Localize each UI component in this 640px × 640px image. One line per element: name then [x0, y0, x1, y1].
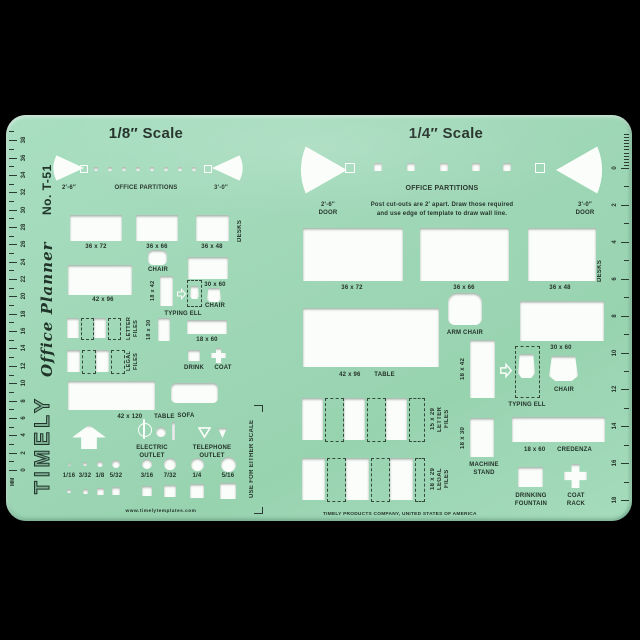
photo-canvas: { "colors":{"background":"#000000","temp…: [0, 0, 640, 640]
partition-post-cutout: [94, 167, 98, 171]
ruler-tick: [624, 260, 629, 261]
hole-cutout: [68, 463, 71, 466]
ruler-tick: [9, 357, 14, 358]
coat-label: COAT: [209, 365, 237, 372]
ruler-fine-tick: [624, 156, 629, 157]
legal-files-word: FILES: [444, 458, 450, 500]
bracket-mark: [254, 507, 263, 514]
partition-note-line: and use edge of template to draw wall li…: [342, 211, 542, 218]
ruler-tick: [9, 166, 14, 167]
chair-label: CHAIR: [549, 387, 579, 394]
desk-size-label: 36 x 72: [76, 244, 116, 251]
arm-chair-cutout: [448, 293, 482, 325]
fraction-label: 5/16: [213, 473, 243, 480]
partition-post-cutout: [192, 167, 196, 171]
letter-files-word: 15 x 29: [430, 398, 436, 440]
ruler-tick: [621, 316, 629, 317]
ruler-tick: [9, 175, 17, 176]
ruler-fine-tick: [624, 165, 629, 166]
drinking-fountain-label: DRINKING: [504, 493, 558, 500]
ruler-tick: [9, 409, 14, 410]
door-size-label: 2′-6″: [54, 185, 84, 192]
ruler-tick: [621, 168, 629, 169]
ruler-fine-tick: [624, 137, 629, 138]
ruler-number: 32: [19, 186, 29, 198]
letter-file-cutout: [344, 398, 365, 440]
desk-30x60-cutout: [188, 257, 228, 279]
ruler-tick: [9, 435, 17, 436]
partition-post-cutout: [503, 163, 511, 171]
ruler-tick: [9, 392, 14, 393]
arrow-cutout: [499, 362, 513, 379]
partition-post-cutout: [108, 167, 112, 171]
door-size-label: 3′-0″: [206, 185, 236, 192]
fraction-label: 1/4: [182, 473, 212, 480]
legal-file-cutout: [390, 458, 413, 500]
door-post-outline-cutout: [535, 163, 545, 173]
typing-chair-cutout: [518, 354, 535, 378]
square-cutout: [142, 486, 152, 496]
door-post-outline-cutout: [80, 165, 88, 173]
ruler-number: 18: [610, 494, 620, 506]
legal-file-cutout: [346, 458, 369, 500]
square-cutout: [67, 489, 71, 493]
ruler-fine-tick: [624, 149, 629, 150]
ruler-tick: [624, 186, 629, 187]
ruler-number: 38: [19, 134, 29, 146]
ruler-tick: [624, 297, 629, 298]
ruler-tick: [9, 158, 17, 159]
ruler-tick: [9, 236, 14, 237]
desk-size-label: 36 x 72: [332, 285, 372, 292]
left-ruler-unit: MM: [8, 476, 18, 488]
partition-post-cutout: [122, 167, 126, 171]
ruler-tick: [621, 242, 629, 243]
coat-rack-label: RACK: [558, 501, 594, 508]
bracket-mark: [254, 405, 263, 412]
ruler-number: 4: [610, 236, 620, 248]
coat-cutout: [211, 348, 226, 363]
desks-side-label: DESKS: [594, 251, 606, 291]
office-partitions-label: OFFICE PARTITIONS: [397, 185, 487, 193]
office-partitions-label: OFFICE PARTITIONS: [101, 185, 191, 192]
ruler-number: 10: [610, 347, 620, 359]
ruler-tick: [9, 305, 14, 306]
partition-post-cutout: [472, 163, 480, 171]
size-18x60-label: 18 x 60: [187, 337, 227, 344]
chair-cutout: [207, 288, 221, 302]
desk-size-label: 36 x 48: [192, 244, 232, 251]
square-cutout: [190, 484, 204, 498]
ruler-fine-tick: [624, 162, 629, 163]
ruler-tick: [9, 322, 14, 323]
ruler-tick: [9, 210, 17, 211]
electric-outlet-dot: [156, 427, 166, 437]
letter-file-outline: [409, 398, 425, 442]
ruler-tick: [9, 348, 17, 349]
either-scale-text: USE FOR EITHER SCALE: [249, 413, 255, 505]
chair-label: CHAIR: [200, 303, 230, 310]
fraction-label: 7/32: [155, 473, 185, 480]
table-42x96-label: 42 x 96 TABLE: [322, 372, 412, 379]
ruler-tick: [9, 366, 17, 367]
size-18x30-label: 18 x 30: [144, 317, 153, 343]
door-swing-cutout: [299, 142, 347, 198]
machine-stand-cutout: [470, 418, 494, 457]
square-cutout: [83, 489, 88, 494]
legal-files-word: 18 x 29: [430, 458, 436, 500]
letter-files-word: FILES: [444, 398, 450, 440]
ruler-tick: [621, 205, 629, 206]
drink-label: DRINK: [178, 365, 210, 372]
left-ruler: 02468101214161820222426283032343638: [6, 115, 36, 521]
drinking-fountain-label: FOUNTAIN: [504, 501, 558, 508]
return-18x42-cutout: [160, 276, 173, 306]
partition-post-cutout: [440, 163, 448, 171]
ruler-tick: [9, 444, 14, 445]
telephone-outlet-triangle: [218, 428, 227, 438]
electric-outlet-symbol: [138, 423, 152, 437]
legal-files-word: LEGAL: [126, 348, 132, 374]
ruler-tick: [621, 463, 629, 464]
partition-post-cutout: [150, 167, 154, 171]
ruler-tick: [621, 353, 629, 354]
ruler-number: 24: [19, 256, 29, 268]
ruler-tick: [621, 389, 629, 390]
machine-stand-label: MACHINE: [458, 462, 510, 469]
ruler-number: 12: [19, 360, 29, 372]
letter-file-cutout: [386, 398, 407, 440]
ruler-tick: [621, 426, 629, 427]
ruler-number: 0: [19, 464, 29, 476]
ruler-tick: [9, 227, 17, 228]
letter-file-cutout: [94, 318, 106, 338]
ruler-fine-tick: [624, 134, 629, 135]
letter-file-outline: [108, 318, 121, 340]
ruler-tick: [624, 334, 629, 335]
credenza-cutout: [512, 417, 605, 442]
ruler-tick: [9, 201, 14, 202]
chair-label: CHAIR: [143, 267, 173, 274]
hole-cutout: [142, 459, 152, 469]
partition-post-cutout: [407, 163, 415, 171]
ruler-tick: [9, 279, 17, 280]
ruler-tick: [9, 270, 14, 271]
door-post-outline-cutout: [345, 163, 355, 173]
hole-cutout: [221, 457, 236, 472]
ruler-number: 8: [610, 310, 620, 322]
desk-30x60-cutout: [520, 301, 604, 341]
desk-36x72-cutout: [70, 215, 122, 241]
partition-note-line: Post cut-outs are 2′ apart. Draw those r…: [342, 202, 542, 209]
manufacturer-label: TIMELY PRODUCTS COMPANY, UNITED STATES O…: [323, 512, 459, 518]
ruler-number: 2: [19, 447, 29, 459]
ruler-tick: [9, 331, 17, 332]
table-size-label: 42 x 96: [83, 297, 123, 304]
return-18x42-cutout: [470, 340, 495, 398]
ruler-number: 18: [19, 308, 29, 320]
legal-file-outline: [371, 458, 390, 502]
electric-outlet-bar: [172, 422, 175, 440]
square-cutout: [112, 487, 121, 496]
right-ruler: 024681012141618: [606, 115, 632, 521]
sofa-cutout: [171, 383, 218, 403]
ruler-tick: [9, 314, 17, 315]
ruler-tick: [624, 482, 629, 483]
letter-files-label: LETTER FILES: [124, 315, 140, 341]
letter-files-word: LETTER: [437, 398, 443, 440]
legal-file-cutout: [302, 458, 325, 500]
ruler-tick: [9, 375, 14, 376]
size-18x30-text: 18 x 30: [146, 317, 152, 343]
ruler-tick: [9, 418, 17, 419]
ruler-tick: [9, 453, 17, 454]
desks-side-label: DESKS: [234, 213, 246, 249]
letter-files-word: LETTER: [126, 315, 132, 341]
door-swing-cutout: [212, 153, 244, 183]
hole-cutout: [97, 461, 103, 467]
ruler-number: 36: [19, 152, 29, 164]
door-swing-cutout: [556, 142, 604, 198]
ruler-number: 6: [610, 273, 620, 285]
ruler-tick: [9, 149, 14, 150]
ruler-tick: [9, 340, 14, 341]
legal-file-outline: [415, 458, 425, 502]
door-post-outline-cutout: [204, 165, 212, 173]
arrow-cutout: [176, 288, 187, 300]
ruler-tick: [624, 371, 629, 372]
desks-side-text: DESKS: [597, 251, 603, 291]
telephone-outlet-symbol: [198, 427, 211, 438]
ruler-tick: [9, 131, 14, 132]
size-30x60-label: 30 x 60: [540, 345, 582, 352]
ruler-tick: [9, 140, 17, 141]
legal-files-label: LEGAL FILES: [124, 348, 140, 374]
drinking-fountain-cutout: [518, 467, 543, 487]
ruler-number: 14: [19, 342, 29, 354]
door-size-label: 2′-6″: [310, 202, 346, 209]
ruler-tick: [9, 184, 14, 185]
legal-file-outline: [111, 350, 125, 374]
table-word-text: TABLE: [374, 372, 395, 378]
partition-post-cutout: [164, 167, 168, 171]
hole-cutout: [164, 458, 176, 470]
website-label: www.timelytemplates.com: [117, 509, 205, 515]
hole-cutout: [191, 458, 204, 471]
ruler-number: 2: [610, 199, 620, 211]
coat-rack-label: COAT: [558, 493, 594, 500]
ruler-number: 22: [19, 273, 29, 285]
desk-36x66-cutout: [420, 228, 509, 281]
ruler-number: 10: [19, 377, 29, 389]
ruler-number: 26: [19, 238, 29, 250]
legal-files-word: FILES: [133, 348, 139, 374]
credenza-label: 18 x 60 CREDENZA: [514, 447, 602, 454]
table-42x120-cutout: [68, 381, 155, 410]
ruler-fine-tick: [624, 140, 629, 141]
brand-script-text: Office Planner: [38, 233, 56, 385]
letter-file-cutout: [302, 398, 323, 440]
quarter-scale-title: 1/4″ Scale: [386, 125, 506, 142]
ruler-number: 28: [19, 221, 29, 233]
arm-chair-label: ARM CHAIR: [439, 330, 491, 337]
ruler-fine-tick: [624, 146, 629, 147]
size-18x42-label: 18 x 42: [458, 343, 468, 395]
chair-cutout: [148, 250, 167, 265]
stencil-template: No. T-51 Office Planner TIMELY 024681012…: [6, 115, 632, 521]
table-42x96-cutout: [68, 265, 132, 295]
stand-18x30-cutout: [158, 318, 170, 341]
ruler-fine-tick: [624, 153, 629, 154]
ruler-tick: [9, 192, 17, 193]
either-scale-label: USE FOR EITHER SCALE: [246, 413, 258, 505]
size-18x42-text: 18 x 42: [460, 343, 466, 395]
credenza-word-text: CREDENZA: [557, 447, 592, 453]
ruler-number: 30: [19, 204, 29, 216]
desk-size-label: 36 x 48: [540, 285, 580, 292]
square-cutout: [164, 485, 176, 497]
ruler-fine-tick: [624, 143, 629, 144]
letter-files-word: FILES: [133, 315, 139, 341]
desk-36x48-cutout: [528, 228, 596, 281]
ruler-number: 14: [610, 420, 620, 432]
ruler-tick: [624, 223, 629, 224]
ruler-number: 8: [19, 395, 29, 407]
credenza-18x60-cutout: [187, 320, 227, 334]
drink-cutout: [188, 350, 200, 361]
letter-file-outline: [81, 318, 94, 340]
partition-post-cutout: [374, 163, 382, 171]
ruler-number: 20: [19, 290, 29, 302]
electric-outlet-label: ELECTRIC: [132, 445, 172, 452]
typing-ell-label: TYPING ELL: [502, 402, 552, 409]
table-42x96-cutout: [303, 308, 439, 367]
ruler-tick: [621, 279, 629, 280]
door-word-label: DOOR: [567, 210, 603, 217]
square-cutout: [97, 488, 104, 495]
letter-file-outline: [367, 398, 386, 442]
ruler-number: 0: [610, 162, 620, 174]
electric-outlet-line: [143, 419, 145, 439]
partition-post-cutout: [178, 167, 182, 171]
size-18x30-text: 18 x 30: [460, 420, 466, 456]
desk-size-label: 36 x 66: [444, 285, 484, 292]
desk-36x66-cutout: [136, 215, 178, 241]
ruler-tick: [9, 253, 14, 254]
north-arrow-cutout: [72, 425, 106, 449]
fraction-label: 5/32: [101, 473, 131, 480]
ruler-tick: [9, 461, 14, 462]
table-size-text: 42 x 96: [339, 372, 360, 378]
square-cutout: [220, 483, 236, 499]
door-word-label: DOOR: [310, 210, 346, 217]
letter-file-outline: [325, 398, 344, 442]
ruler-tick: [624, 445, 629, 446]
size-18x42-text: 18 x 42: [150, 275, 156, 306]
ruler-number: 12: [610, 383, 620, 395]
ruler-number: 16: [19, 325, 29, 337]
brand-script: Office Planner: [36, 233, 58, 385]
chair-cutout: [549, 356, 578, 381]
legal-files-label: 18 x 29 LEGAL FILES: [426, 458, 454, 500]
letter-file-cutout: [67, 318, 79, 338]
legal-file-cutout: [96, 350, 109, 372]
ruler-fine-tick: [624, 159, 629, 160]
ruler-number: 4: [19, 429, 29, 441]
ruler-number: 6: [19, 412, 29, 424]
telephone-outlet-label: TELEPHONE: [190, 445, 234, 452]
credenza-size-text: 18 x 60: [524, 447, 545, 453]
legal-files-word: LEGAL: [437, 458, 443, 500]
hole-cutout: [83, 462, 88, 467]
ruler-tick: [9, 296, 17, 297]
ruler-tick: [624, 408, 629, 409]
ruler-tick: [9, 218, 14, 219]
ruler-tick: [9, 288, 14, 289]
desk-36x72-cutout: [303, 228, 403, 281]
eighth-scale-title: 1/8″ Scale: [91, 125, 201, 142]
legal-file-cutout: [67, 350, 80, 372]
machine-stand-label: STAND: [458, 470, 510, 477]
desks-side-text: DESKS: [237, 213, 243, 249]
ruler-tick: [9, 383, 17, 384]
ruler-number: 16: [610, 457, 620, 469]
ruler-tick: [621, 500, 629, 501]
size-18x30-label: 18 x 30: [458, 420, 468, 456]
door-size-label: 3′-0″: [567, 202, 603, 209]
hole-cutout: [112, 460, 120, 468]
ruler-tick: [9, 401, 17, 402]
ruler-tick: [9, 427, 14, 428]
ruler-tick: [9, 470, 17, 471]
coat-rack-cutout: [564, 464, 587, 488]
partition-post-cutout: [136, 167, 140, 171]
legal-file-outline: [327, 458, 346, 502]
ruler-tick: [9, 244, 17, 245]
desk-36x48-cutout: [196, 215, 229, 241]
sofa-label: SOFA: [168, 413, 204, 420]
ruler-number: 34: [19, 169, 29, 181]
size-18x42-label: 18 x 42: [148, 275, 158, 306]
legal-file-outline: [82, 350, 96, 374]
table-size-text: 42 x 120: [117, 414, 142, 420]
letter-files-label: 15 x 29 LETTER FILES: [426, 398, 454, 440]
ruler-tick: [9, 262, 17, 263]
